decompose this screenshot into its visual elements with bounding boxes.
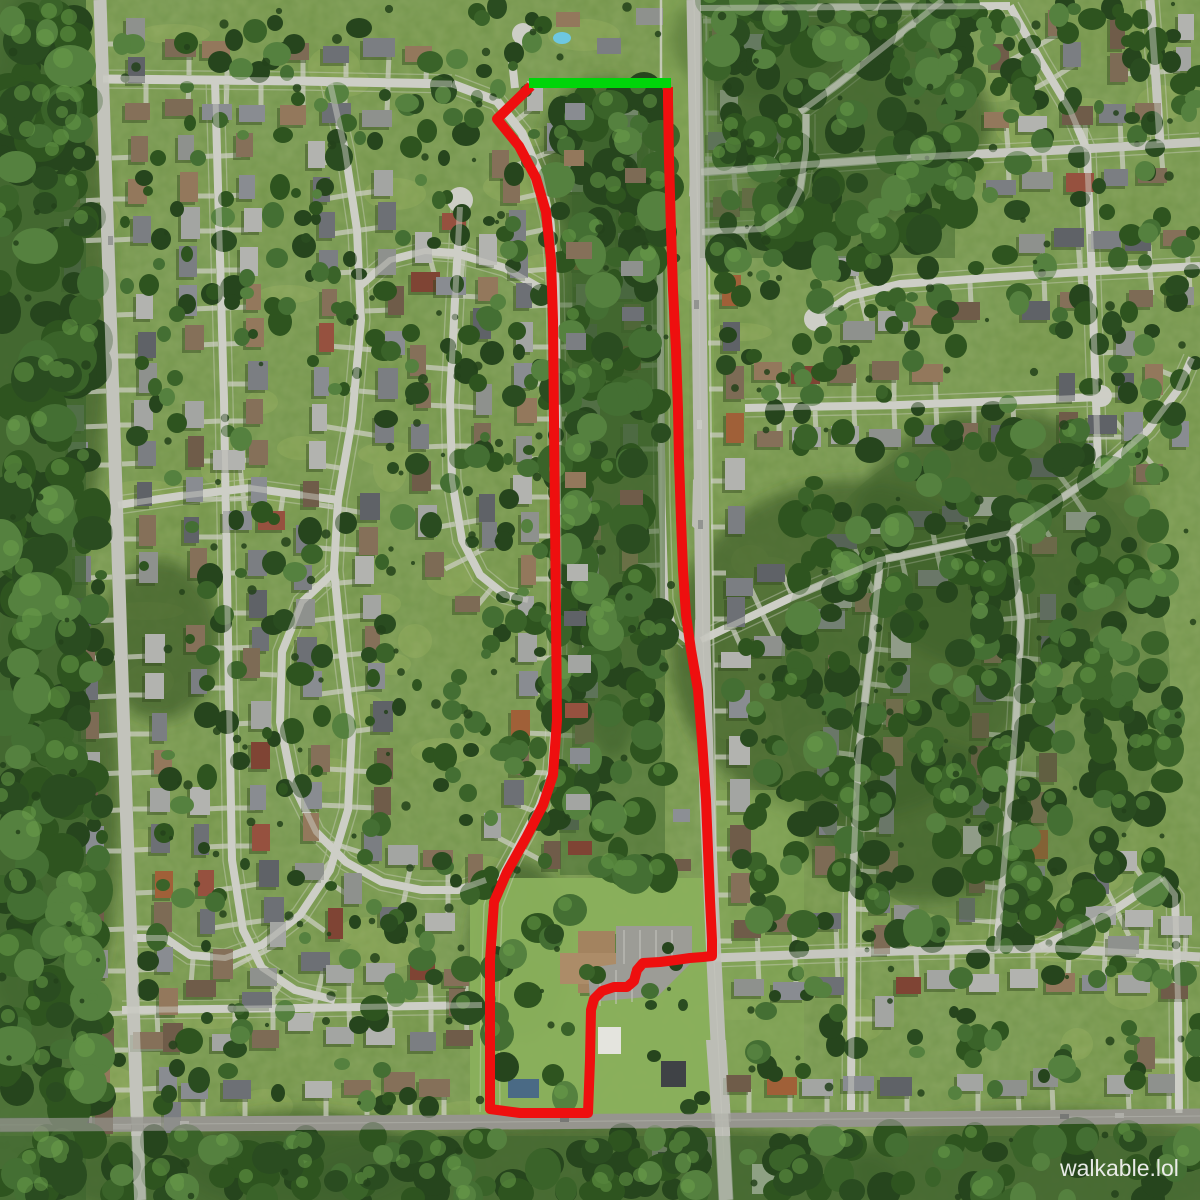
svg-text:walkable.lol: walkable.lol — [1059, 1155, 1179, 1181]
